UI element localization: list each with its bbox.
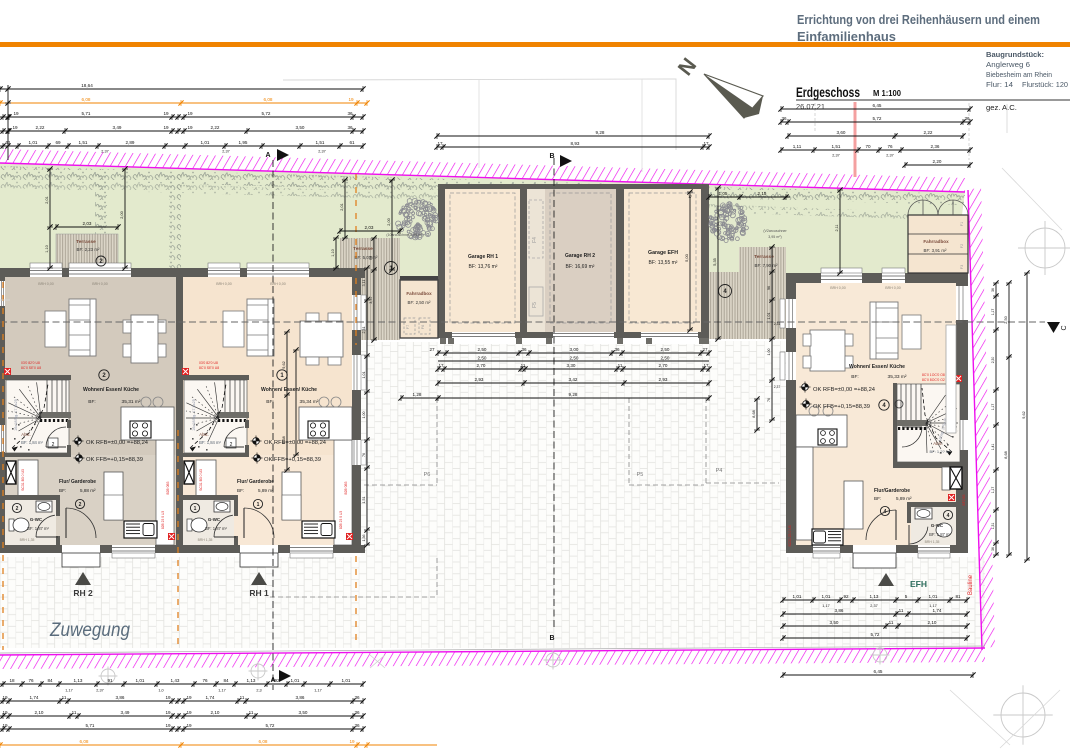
svg-text:C: C [1061,325,1068,330]
svg-text:19: 19 [165,695,171,700]
svg-text:11: 11 [889,620,894,625]
svg-text:17: 17 [688,195,692,199]
svg-text:17: 17 [703,141,709,146]
svg-text:2,31: 2,31 [362,327,366,334]
svg-text:G-WC: G-WC [931,523,944,528]
svg-text:1,01: 1,01 [136,678,145,683]
svg-text:1,17: 1,17 [991,404,995,411]
svg-text:76: 76 [767,398,771,402]
svg-text:SC31 B3 0 U3: SC31 B3 0 U3 [199,469,203,491]
svg-text:1,17: 1,17 [65,689,72,693]
svg-text:19: 19 [165,723,171,728]
svg-text:2,37: 2,37 [870,604,877,608]
svg-text:1,17: 1,17 [218,689,225,693]
svg-text:36: 36 [781,116,787,121]
svg-text:2,37: 2,37 [774,385,781,389]
svg-text:19: 19 [187,111,193,116]
svg-text:2,37: 2,37 [318,150,325,154]
svg-text:3,50: 3,50 [296,125,305,130]
svg-text:1,51: 1,51 [316,140,325,145]
svg-text:27: 27 [429,347,435,352]
svg-text:2,70: 2,70 [659,363,668,368]
svg-text:36: 36 [354,723,360,728]
svg-text:OK RFB=±0,00 =+88,24: OK RFB=±0,00 =+88,24 [86,440,148,446]
svg-text:03'0 82'0 U8: 03'0 82'0 U8 [21,361,40,365]
svg-text:2,15: 2,15 [758,191,767,196]
svg-text:1,13: 1,13 [247,678,256,683]
svg-text:5,72: 5,72 [262,111,271,116]
svg-text:18: 18 [9,678,15,683]
svg-text:11: 11 [62,695,67,700]
svg-text:RH 2: RH 2 [73,588,93,598]
svg-text:2,50: 2,50 [570,356,579,361]
svg-text:B: B [549,635,554,642]
svg-text:3,50: 3,50 [830,620,839,625]
svg-text:61: 61 [349,140,355,145]
svg-text:BF: 13,55 m²: BF: 13,55 m² [649,260,678,266]
svg-text:2,01: 2,01 [45,196,49,203]
svg-text:1,05: 1,05 [719,191,728,196]
svg-text:BRH 1,35: BRH 1,35 [198,538,213,542]
svg-text:F4: F4 [532,237,538,243]
svg-text:B: B [549,153,554,160]
svg-text:17: 17 [703,363,709,368]
svg-text:1,01: 1,01 [822,594,831,599]
svg-text:Garage EFH: Garage EFH [648,250,678,256]
svg-text:36: 36 [347,125,353,130]
svg-text:6,08: 6,08 [82,97,91,102]
svg-text:1,01: 1,01 [929,594,938,599]
svg-text:2,70: 2,70 [477,363,486,368]
svg-text:2,93: 2,93 [475,377,484,382]
svg-text:Abst.: Abst. [933,441,943,446]
svg-text:2,20: 2,20 [933,159,942,164]
svg-text:BF:: BF: [851,374,858,380]
svg-text:OK FFB=+0,15=88,39: OK FFB=+0,15=88,39 [813,404,870,410]
svg-text:1,95: 1,95 [239,140,248,145]
svg-text:Flur/Garderobe: Flur/Garderobe [874,488,910,494]
svg-text:1,00: 1,00 [767,349,771,356]
svg-text:1,43: 1,43 [171,678,180,683]
svg-text:Biebesheim am Rhein: Biebesheim am Rhein [986,70,1052,79]
svg-text:Abst.: Abst. [199,432,209,437]
svg-text:2,22: 2,22 [924,130,933,135]
svg-text:1,13: 1,13 [74,678,83,683]
svg-text:BF: 16,69 m²: BF: 16,69 m² [566,264,595,270]
svg-text:36: 36 [964,116,970,121]
svg-text:5,71: 5,71 [82,111,91,116]
svg-text:RH 1: RH 1 [249,588,269,598]
svg-text:81: 81 [955,594,961,599]
svg-text:OK RFB=±0,00 =+88,24: OK RFB=±0,00 =+88,24 [813,387,875,393]
svg-text:2,30: 2,30 [991,357,995,364]
svg-text:gez. A.C.: gez. A.C. [986,103,1017,112]
svg-text:G-WC: G-WC [208,517,221,522]
svg-text:3,30: 3,30 [567,363,576,368]
svg-text:1,17: 1,17 [991,487,995,494]
svg-text:2,22: 2,22 [36,125,45,130]
svg-text:BRH 0,00: BRH 0,00 [38,282,54,286]
svg-text:96: 96 [369,256,373,260]
svg-text:1,11: 1,11 [793,144,802,149]
svg-text:36: 36 [991,288,995,292]
svg-text:BRH 0,00: BRH 0,00 [216,282,232,286]
svg-text:2,50: 2,50 [661,356,670,361]
svg-text:36: 36 [354,710,360,715]
svg-text:19: 19 [12,125,18,130]
svg-text:P6: P6 [424,472,431,478]
svg-text:36: 36 [347,111,353,116]
svg-text:4: 4 [884,509,887,515]
svg-text:11: 11 [521,363,526,368]
svg-text:91: 91 [107,678,113,683]
svg-text:F5: F5 [532,302,538,308]
svg-text:2,00: 2,00 [120,211,124,218]
svg-text:Anglerweg 6: Anglerweg 6 [986,60,1030,69]
svg-text:3,49: 3,49 [113,125,122,130]
svg-text:76: 76 [887,144,893,149]
svg-text:BF: 5,07 m²: BF: 5,07 m² [355,255,378,260]
svg-text:1,36: 1,36 [362,535,366,542]
svg-text:Fahrradbox: Fahrradbox [406,291,432,296]
svg-text:Flurstück: 120: Flurstück: 120 [1022,80,1068,89]
svg-text:5,72: 5,72 [871,632,880,637]
svg-text:1,28: 1,28 [413,392,422,397]
svg-text:Flur/ Garderobe: Flur/ Garderobe [59,479,96,485]
svg-text:4: 4 [947,513,950,519]
svg-text:BRH 0,00: BRH 0,00 [830,286,846,290]
svg-text:2,93: 2,93 [659,377,668,382]
svg-text:1,74: 1,74 [206,695,215,700]
svg-text:1,31: 1,31 [991,523,995,530]
svg-text:5,88 m²: 5,88 m² [80,488,96,493]
svg-text:M 1:100: M 1:100 [873,89,902,98]
svg-text:9,62: 9,62 [1022,411,1026,418]
svg-text:1,41: 1,41 [991,444,995,451]
svg-text:2,50: 2,50 [1004,316,1008,323]
svg-text:5,72: 5,72 [266,723,275,728]
svg-text:1,74: 1,74 [30,695,39,700]
svg-text:BF:: BF: [88,399,95,405]
svg-text:82B 23 0 U3: 82B 23 0 U3 [339,511,343,529]
svg-text:2,11: 2,11 [835,224,839,231]
svg-text:27: 27 [702,347,708,352]
svg-text:84: 84 [47,678,53,683]
svg-text:19: 19 [186,723,192,728]
svg-text:Garage RH 2: Garage RH 2 [565,253,595,259]
svg-text:2,37: 2,37 [101,150,108,154]
svg-text:2,01: 2,01 [340,203,344,210]
svg-text:1,74: 1,74 [933,608,942,613]
svg-text:19: 19 [163,111,169,116]
svg-text:B2B 0B3: B2B 0B3 [166,481,170,494]
svg-text:5,72: 5,72 [873,116,882,121]
svg-text:11: 11 [72,710,77,715]
svg-text:1,10: 1,10 [331,249,335,256]
svg-text:Einfamilienhaus: Einfamilienhaus [797,29,896,44]
svg-text:Wohnen/ Essen/ Küche: Wohnen/ Essen/ Küche [261,387,317,393]
svg-text:BF: 2,23 m²: BF: 2,23 m² [77,247,100,252]
svg-text:8C'0 1OC'0 O8: 8C'0 1OC'0 O8 [922,373,945,377]
svg-text:6,45: 6,45 [874,669,883,674]
svg-text:5,00: 5,00 [684,253,689,262]
svg-text:Fahrradbox: Fahrradbox [923,239,949,244]
svg-text:BF: 7,90 m²: BF: 7,90 m² [755,263,778,268]
svg-text:A: A [265,152,270,159]
svg-text:3,11: 3,11 [362,280,366,287]
svg-text:2,37: 2,37 [832,154,839,158]
svg-text:EFH: EFH [910,579,927,589]
svg-text:3,95 m²): 3,95 m²) [768,235,781,239]
svg-text:3,49: 3,49 [121,710,130,715]
svg-text:9,28: 9,28 [569,392,578,397]
svg-text:36: 36 [614,347,620,352]
svg-text:BF: 13,76 m²: BF: 13,76 m² [469,264,498,270]
svg-text:3,86: 3,86 [296,695,305,700]
svg-text:18,64: 18,64 [81,83,93,88]
svg-text:1,13: 1,13 [870,594,879,599]
svg-text:19: 19 [186,710,192,715]
svg-text:9,28: 9,28 [596,130,605,135]
svg-text:19: 19 [348,97,354,102]
svg-text:19: 19 [349,739,355,744]
svg-text:2,50: 2,50 [661,347,670,352]
svg-text:F2: F2 [960,244,964,248]
svg-text:2,10: 2,10 [928,620,937,625]
svg-text:1: 1 [257,502,260,508]
svg-text:BF: 1,84 m²: BF: 1,84 m² [199,440,221,445]
svg-text:BRH 0,00: BRH 0,00 [885,286,901,290]
svg-text:36: 36 [354,695,360,700]
svg-text:1,01: 1,01 [342,678,351,683]
svg-text:1,51: 1,51 [79,140,88,145]
svg-text:17: 17 [438,363,444,368]
svg-text:2,37: 2,37 [222,150,229,154]
svg-text:76: 76 [28,678,34,683]
svg-text:OK FFB=+0,15=88,39: OK FFB=+0,15=88,39 [86,457,143,463]
svg-text:SC31 23 0 U3: SC31 23 0 U3 [788,525,792,546]
svg-text:1,17: 1,17 [314,689,321,693]
svg-text:P5: P5 [637,472,644,478]
svg-text:1,17: 1,17 [822,604,829,608]
svg-text:Terrasse: Terrasse [353,246,373,252]
svg-text:2,89: 2,89 [126,140,135,145]
svg-text:5,89 m²: 5,89 m² [258,488,274,493]
svg-text:N: N [674,54,701,80]
svg-text:1,01: 1,01 [793,594,802,599]
svg-text:6,08: 6,08 [264,97,273,102]
svg-text:1,0: 1,0 [158,689,163,693]
svg-text:1,01: 1,01 [362,372,366,379]
svg-text:Flur: 14: Flur: 14 [986,80,1013,89]
svg-text:82B 23 0 U3: 82B 23 0 U3 [161,511,165,529]
svg-text:36: 36 [991,547,995,551]
svg-text:11: 11 [618,363,623,368]
svg-text:5,35: 5,35 [713,258,717,265]
svg-text:5,89 m²: 5,89 m² [896,496,912,501]
svg-text:2,50: 2,50 [478,347,487,352]
svg-text:19: 19 [187,125,193,130]
svg-text:19: 19 [13,111,19,116]
svg-text:2,22: 2,22 [211,125,220,130]
svg-text:F7: F7 [406,325,410,329]
svg-text:BRH 0,00: BRH 0,00 [270,282,286,286]
svg-text:Abst.: Abst. [21,432,31,437]
svg-text:1,01: 1,01 [29,140,38,145]
svg-text:BF:: BF: [874,496,881,501]
svg-text:2: 2 [16,506,19,512]
svg-text:8,93: 8,93 [571,141,580,146]
svg-text:2,10: 2,10 [211,710,220,715]
svg-text:6,08: 6,08 [80,739,89,744]
svg-text:3,50: 3,50 [299,710,308,715]
svg-text:92: 92 [843,594,849,599]
svg-text:6,08: 6,08 [259,739,268,744]
svg-text:F6: F6 [421,325,425,329]
svg-text:1,10: 1,10 [45,245,49,252]
svg-text:70: 70 [865,144,871,149]
svg-text:BF: 2,50 m²: BF: 2,50 m² [408,300,431,305]
svg-text:1,01: 1,01 [201,140,210,145]
svg-text:(V2arcuschner: (V2arcuschner [763,229,787,233]
svg-text:19: 19 [163,125,169,130]
svg-text:2,03: 2,03 [83,221,92,226]
svg-text:19: 19 [165,710,171,715]
svg-text:1,51: 1,51 [362,497,366,504]
svg-text:1: 1 [194,506,197,512]
svg-text:26.07.21: 26.07.21 [796,102,825,111]
svg-text:2: 2 [79,502,82,508]
svg-text:BF:: BF: [59,488,66,493]
svg-text:2,03: 2,03 [365,225,374,230]
svg-text:8,68: 8,68 [282,436,286,443]
svg-text:F3: F3 [960,265,964,269]
svg-text:96: 96 [767,286,771,290]
svg-text:3,00: 3,00 [570,347,579,352]
svg-text:Baugrundstück:: Baugrundstück: [986,50,1044,59]
svg-text:Zuwegung: Zuwegung [49,620,130,641]
svg-text:19: 19 [2,710,8,715]
svg-text:8,68: 8,68 [1004,451,1008,458]
svg-text:BRH 0,00: BRH 0,00 [92,282,108,286]
svg-text:76: 76 [202,678,208,683]
svg-text:BRH 1,35: BRH 1,35 [20,538,35,542]
svg-text:BF: 1,84 m²: BF: 1,84 m² [21,440,43,445]
svg-text:35,34 m²: 35,34 m² [300,399,319,405]
svg-text:76: 76 [362,453,366,457]
svg-text:BF: 1,?? m²: BF: 1,?? m² [930,449,952,454]
svg-text:1,51: 1,51 [832,144,841,149]
svg-text:3,42: 3,42 [569,377,578,382]
svg-text:Terrasse: Terrasse [754,254,774,260]
svg-text:1,17: 1,17 [991,309,995,316]
svg-text:Terrasse: Terrasse [76,239,96,245]
svg-text:16x18Stg. 17,5x25: 16x18Stg. 17,5x25 [14,399,18,431]
svg-text:92: 92 [274,678,280,683]
svg-text:2,37: 2,37 [886,154,893,158]
svg-text:8C'0 SE'0 U8: 8C'0 SE'0 U8 [21,366,41,370]
svg-text:69: 69 [55,140,61,145]
svg-text:SC31 B3 0 U3: SC31 B3 0 U3 [21,469,25,491]
svg-text:1,01: 1,01 [767,313,771,320]
svg-text:Garage RH 1: Garage RH 1 [468,254,498,260]
svg-text:11: 11 [899,608,904,613]
svg-text:3,86: 3,86 [835,608,844,613]
svg-text:Bauline: Bauline [968,574,974,595]
svg-text:84: 84 [223,678,229,683]
svg-text:35,31 m²: 35,31 m² [122,399,141,405]
svg-text:8,68: 8,68 [752,410,756,417]
svg-text:19: 19 [186,695,192,700]
svg-text:2,10: 2,10 [35,710,44,715]
svg-text:9,62: 9,62 [282,361,286,368]
svg-text:Wohnen/ Essen/ Küche: Wohnen/ Essen/ Küche [849,364,905,370]
svg-text:2,50: 2,50 [478,356,487,361]
svg-text:2,00: 2,00 [387,218,391,225]
svg-text:2,36: 2,36 [931,144,940,149]
svg-text:36: 36 [521,347,527,352]
svg-text:19: 19 [2,723,8,728]
svg-text:Errichtung von drei Reihenhäus: Errichtung von drei Reihenhäusern und ei… [797,12,1040,27]
svg-text:2,31: 2,31 [774,322,781,326]
svg-text:19: 19 [2,695,8,700]
svg-text:5,71: 5,71 [86,723,95,728]
svg-text:03'0 82'0 U8: 03'0 82'0 U8 [199,361,218,365]
svg-text:BRH 1,35: BRH 1,35 [925,540,940,544]
svg-text:16x18Stg. 17,5x25: 16x18Stg. 17,5x25 [192,399,196,431]
svg-text:P4: P4 [716,468,723,474]
svg-text:11: 11 [249,710,254,715]
svg-text:G-WC: G-WC [30,517,43,522]
svg-text:1,01: 1,01 [291,678,300,683]
svg-text:BF: 3,91 m²: BF: 3,91 m² [924,248,947,253]
svg-text:Wohnen/ Essen/ Küche: Wohnen/ Essen/ Küche [83,387,139,393]
svg-text:Erdgeschoss: Erdgeschoss [796,84,860,100]
svg-text:B2B 0B3: B2B 0B3 [344,481,348,494]
svg-text:BF2 B3: BF2 B3 [962,494,966,505]
svg-text:F1: F1 [960,222,964,226]
svg-text:1,00: 1,00 [362,412,366,419]
svg-text:2,3: 2,3 [256,689,261,693]
svg-text:5: 5 [905,594,908,599]
svg-text:17: 17 [437,141,443,146]
svg-text:2,37: 2,37 [96,689,103,693]
svg-text:3,86: 3,86 [116,695,125,700]
svg-text:BF:: BF: [237,488,244,493]
svg-text:6,45: 6,45 [873,103,882,108]
svg-text:3,60: 3,60 [837,130,846,135]
svg-text:BF: 1,87 m²: BF: 1,87 m² [929,532,951,537]
svg-text:11: 11 [240,695,245,700]
svg-text:35,33 m²: 35,33 m² [888,374,907,380]
svg-text:Flur/ Garderobe: Flur/ Garderobe [237,479,274,485]
svg-text:8C'0 8OC'0 O2: 8C'0 8OC'0 O2 [922,378,945,382]
svg-text:8C'0 SE'0 U8: 8C'0 SE'0 U8 [199,366,219,370]
